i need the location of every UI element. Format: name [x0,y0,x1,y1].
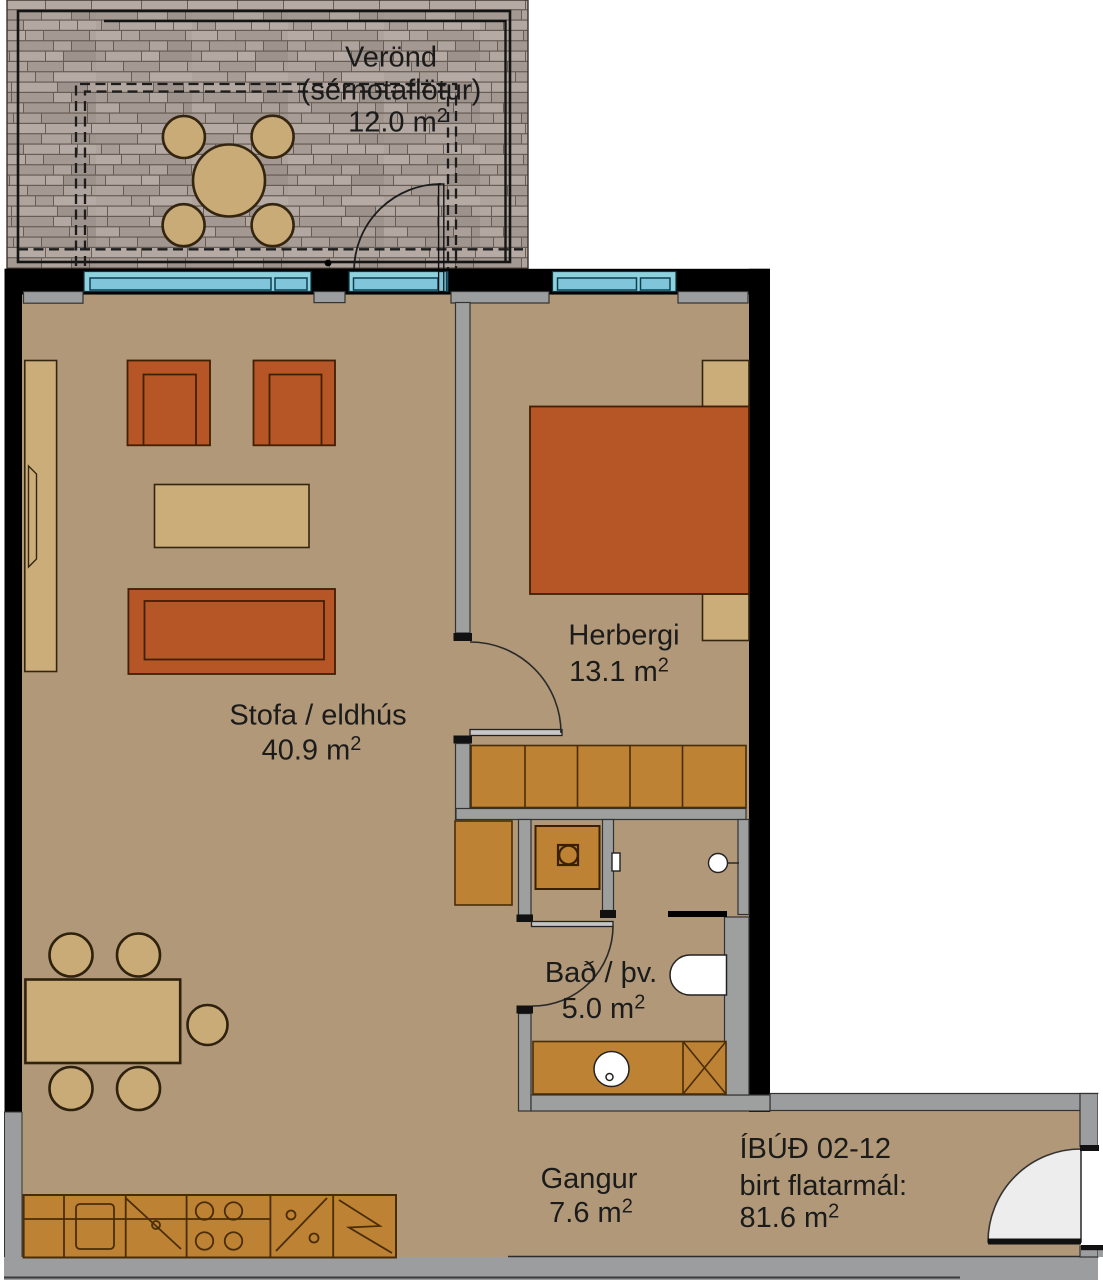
svg-text:Verönd: Verönd [345,42,437,74]
svg-text:Stofa / eldhús: Stofa / eldhús [229,699,406,731]
svg-text:40.9 m2: 40.9 m2 [262,733,362,767]
svg-text:birt flatarmál:: birt flatarmál: [740,1170,908,1202]
svg-text:Bað / þv.: Bað / þv. [545,957,657,989]
svg-text:13.1 m2: 13.1 m2 [569,655,669,689]
svg-text:81.6 m2: 81.6 m2 [740,1201,840,1235]
svg-text:ÍBÚÐ 02-12: ÍBÚÐ 02-12 [740,1132,892,1165]
svg-text:(sérnotaflötur): (sérnotaflötur) [301,75,482,107]
svg-text:Herbergi: Herbergi [568,620,679,652]
svg-text:7.6 m2: 7.6 m2 [549,1196,633,1230]
svg-text:5.0 m2: 5.0 m2 [562,992,646,1026]
svg-text:12.0 m2: 12.0 m2 [348,105,448,139]
svg-text:Gangur: Gangur [541,1163,638,1195]
